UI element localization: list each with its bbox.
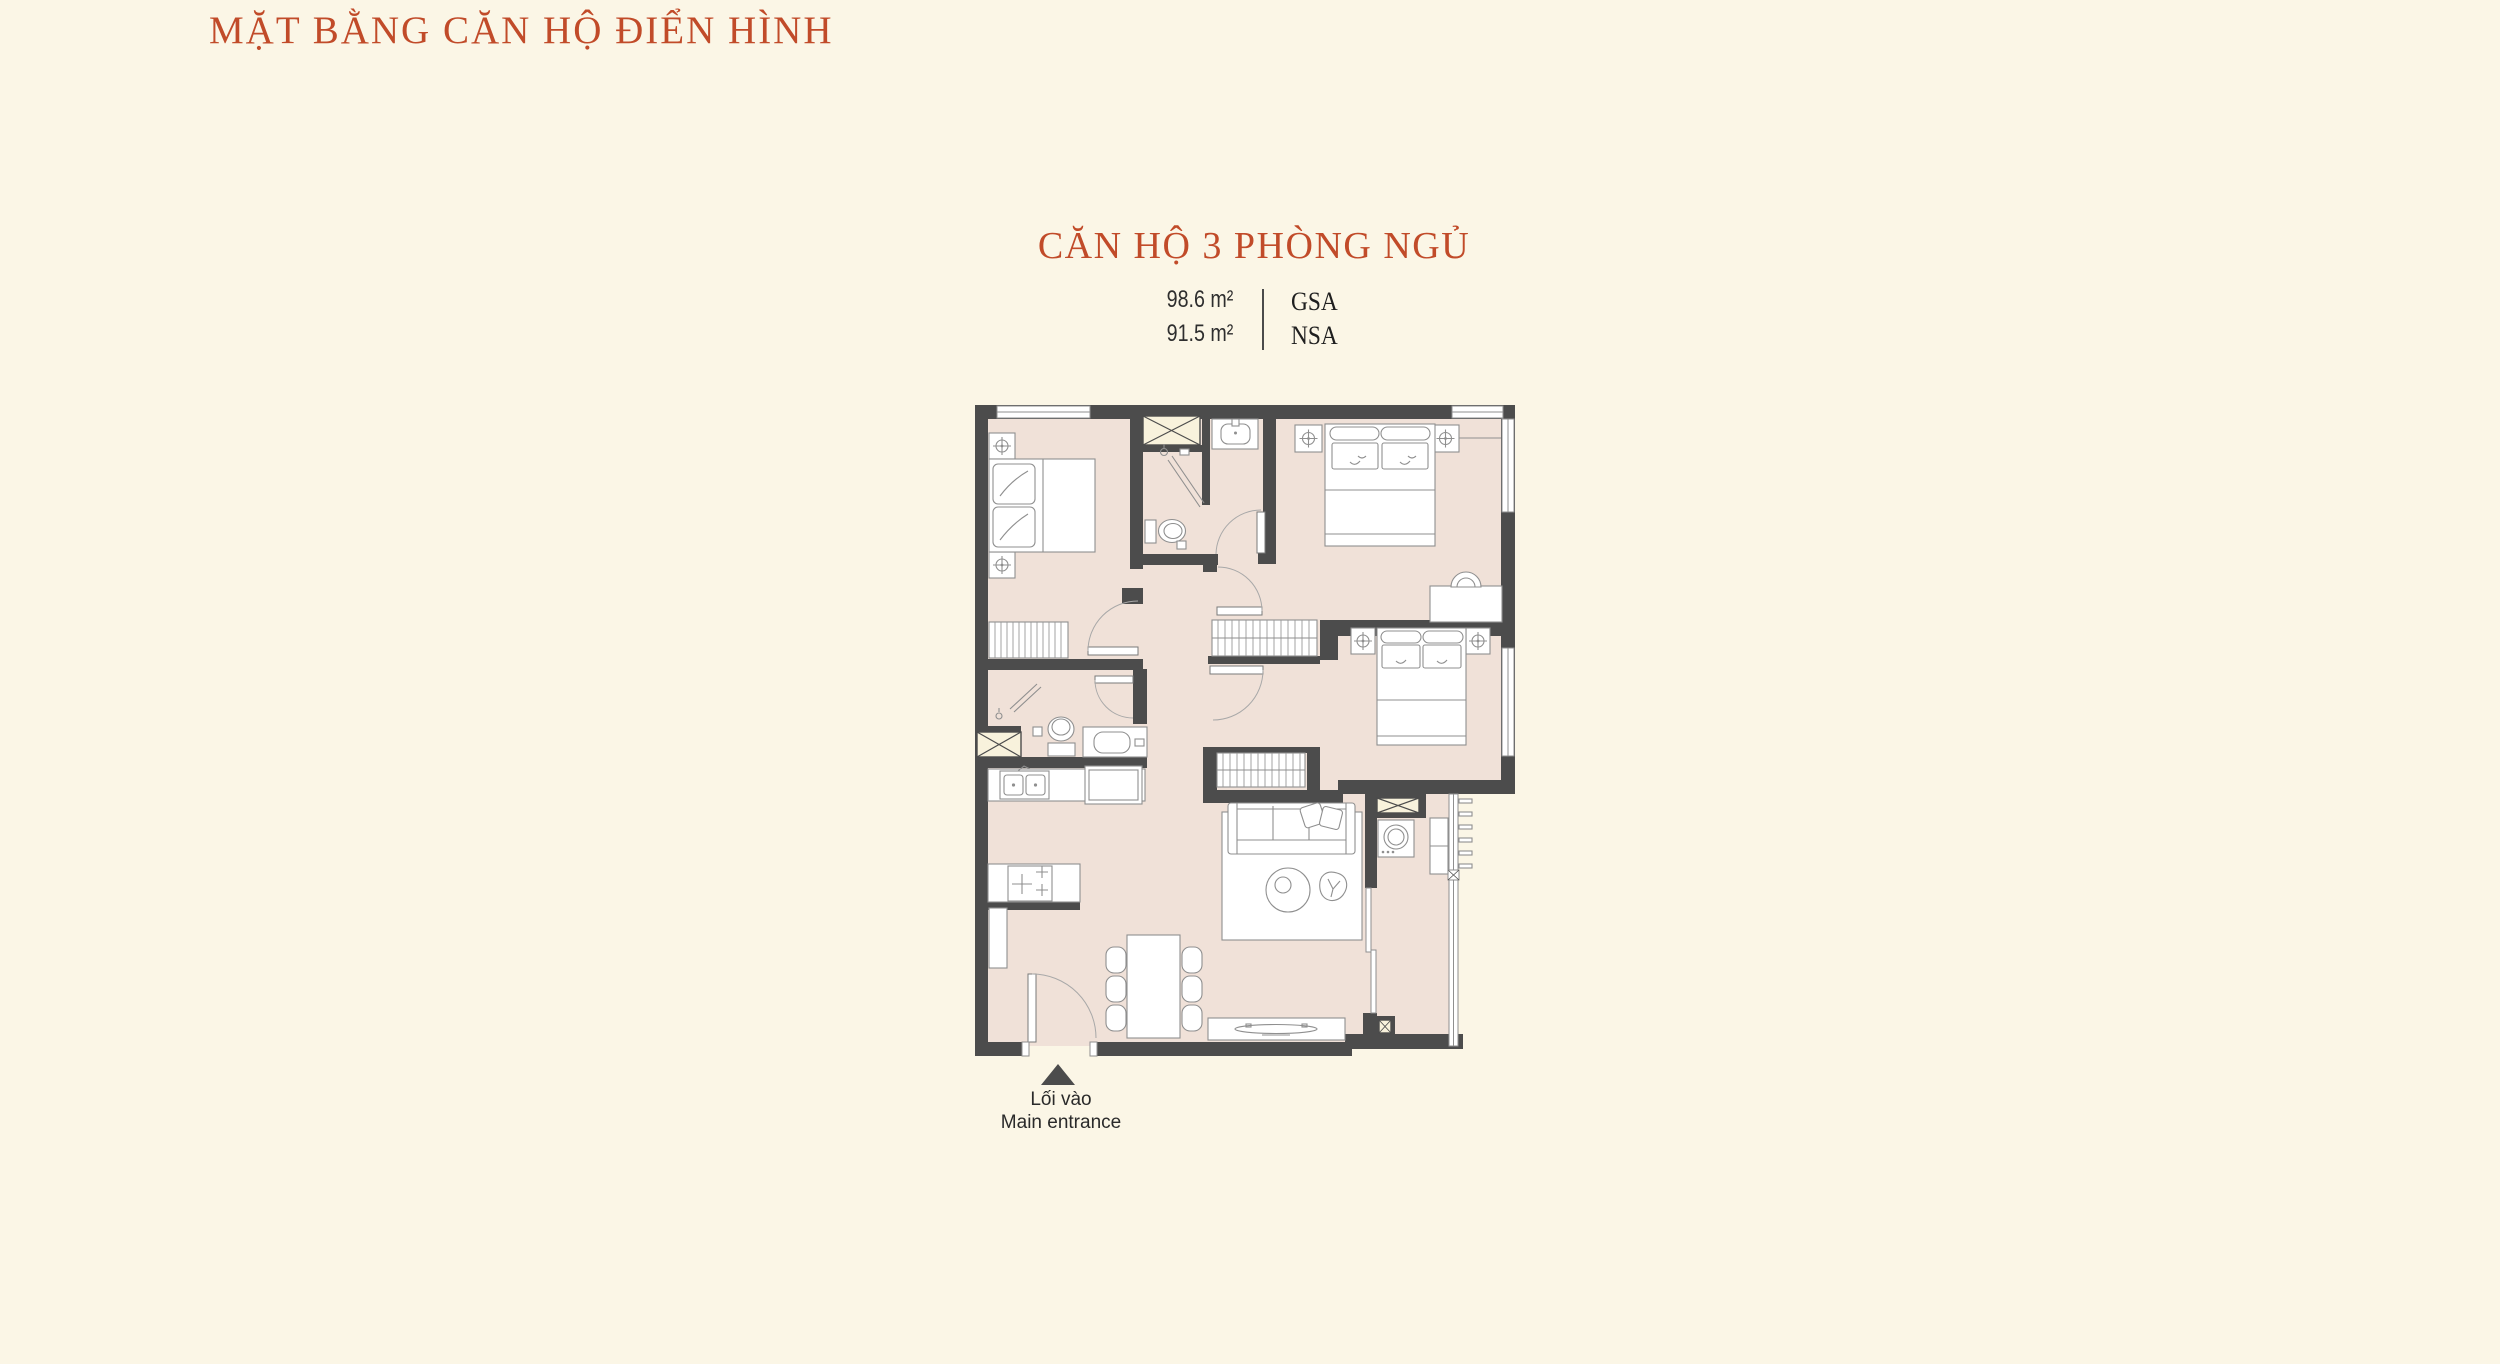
gsa-label: GSA [1291, 285, 1343, 319]
chair-icon [1182, 976, 1202, 1002]
dining-table-icon [1127, 935, 1180, 1038]
tv-icon [1235, 1025, 1317, 1034]
nsa-label: NSA [1291, 319, 1343, 353]
area-divider [1262, 289, 1264, 350]
shoe-cabinet [989, 908, 1007, 968]
bed-icon [1325, 424, 1435, 546]
chair-icon [1106, 976, 1126, 1002]
bathroom2-door [1095, 676, 1133, 683]
area-labels: GSA NSA [1291, 285, 1343, 353]
coffee-table-icon [1266, 868, 1310, 912]
entrance-label-en: Main entrance [961, 1111, 1161, 1134]
entrance-door [1028, 974, 1036, 1042]
pillow [1319, 806, 1343, 830]
balcony-slider [1366, 888, 1371, 952]
area-values: 98.6 m² 91.5 m² [1043, 283, 1233, 351]
stove-counter [988, 864, 1080, 902]
chair-icon [1182, 1005, 1202, 1031]
desk-icon [1430, 586, 1502, 622]
entrance-label: Lối vào Main entrance [961, 1088, 1161, 1134]
armchair-icon [1320, 872, 1347, 900]
bedroom3-door [1210, 666, 1263, 674]
entrance-label-vi: Lối vào [961, 1088, 1161, 1111]
chair-icon [1182, 947, 1202, 973]
fridge-icon [1085, 766, 1142, 804]
floor-plan [950, 385, 1570, 1155]
bedroom1-door [1088, 647, 1138, 655]
toilet-icon [1145, 520, 1156, 543]
hall-door [1217, 607, 1262, 615]
ac-louver-icon [1459, 799, 1472, 803]
page-title: MẶT BẰNG CĂN HỘ ĐIỂN HÌNH [209, 8, 834, 53]
gsa-value: 98.6 m² [1043, 283, 1233, 317]
entrance-arrow-icon [1041, 1064, 1075, 1085]
unit-title: CĂN HỘ 3 PHÒNG NGỦ [954, 224, 1554, 268]
chair-icon [1106, 947, 1126, 973]
bathroom1-door [1257, 512, 1265, 553]
nsa-value: 91.5 m² [1043, 317, 1233, 351]
chair-icon [1106, 1005, 1126, 1031]
dining-area [1106, 935, 1202, 1038]
